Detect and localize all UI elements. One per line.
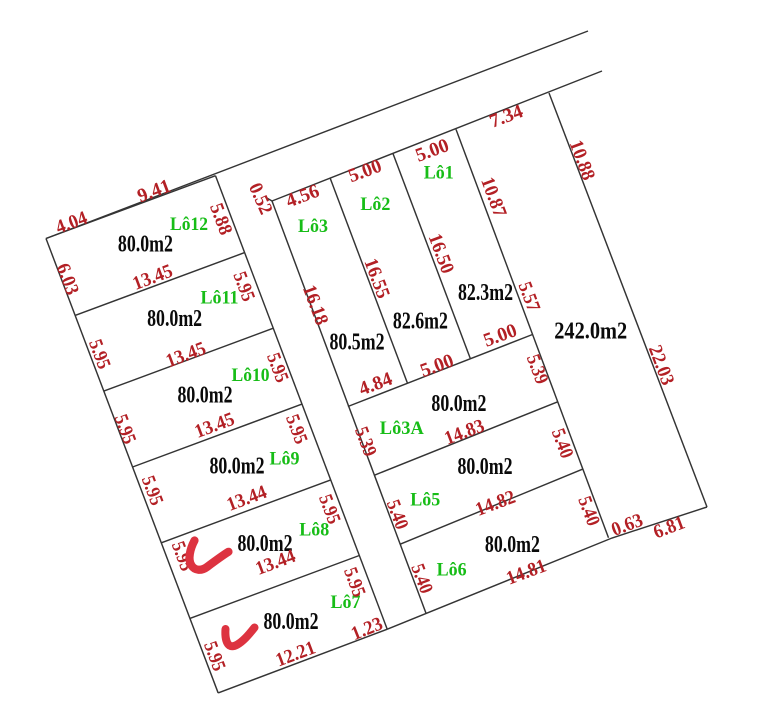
svg-text:Lô11: Lô11 (201, 288, 239, 309)
svg-text:5.39: 5.39 (350, 424, 380, 460)
svg-text:80.0m2: 80.0m2 (485, 532, 540, 558)
svg-text:80.0m2: 80.0m2 (264, 609, 319, 635)
svg-text:5.40: 5.40 (406, 561, 436, 596)
svg-text:6.81: 6.81 (651, 512, 688, 543)
svg-text:13.45: 13.45 (192, 409, 238, 443)
svg-text:Lô3A: Lô3A (380, 418, 424, 439)
svg-text:Lô3: Lô3 (298, 216, 328, 237)
svg-text:13.45: 13.45 (163, 338, 209, 372)
svg-text:16.55: 16.55 (359, 256, 393, 302)
svg-text:5.95: 5.95 (84, 337, 114, 373)
svg-text:0.63: 0.63 (609, 510, 647, 541)
svg-text:Lô5: Lô5 (410, 490, 440, 511)
svg-text:14.83: 14.83 (442, 415, 488, 449)
svg-text:4.56: 4.56 (283, 181, 322, 213)
svg-text:5.00: 5.00 (346, 156, 385, 188)
svg-text:5.95: 5.95 (137, 473, 167, 509)
svg-text:5.00: 5.00 (418, 350, 457, 382)
svg-text:80.0m2: 80.0m2 (118, 232, 173, 258)
svg-text:22.03: 22.03 (644, 342, 678, 388)
svg-text:242.0m2: 242.0m2 (554, 318, 627, 344)
svg-text:82.3m2: 82.3m2 (458, 280, 513, 306)
svg-text:6.03: 6.03 (52, 261, 83, 299)
svg-text:5.88: 5.88 (205, 201, 236, 239)
svg-text:5.40: 5.40 (382, 497, 412, 532)
svg-text:Lô10: Lô10 (232, 365, 270, 386)
svg-text:9.41: 9.41 (135, 176, 174, 208)
svg-text:5.57: 5.57 (514, 279, 544, 315)
svg-text:0.52: 0.52 (244, 180, 276, 218)
svg-text:10.88: 10.88 (565, 137, 599, 183)
svg-text:16.18: 16.18 (298, 282, 332, 328)
svg-text:13.45: 13.45 (130, 261, 176, 295)
svg-text:4.04: 4.04 (53, 208, 91, 239)
svg-text:7.34: 7.34 (487, 101, 526, 133)
svg-text:5.00: 5.00 (481, 320, 520, 352)
svg-text:5.95: 5.95 (110, 412, 140, 448)
svg-text:80.0m2: 80.0m2 (210, 453, 265, 479)
svg-text:12.21: 12.21 (273, 637, 319, 671)
svg-text:80.0m2: 80.0m2 (147, 306, 202, 332)
svg-text:5.40: 5.40 (547, 426, 577, 461)
svg-text:14.81: 14.81 (504, 556, 550, 590)
svg-text:14.82: 14.82 (473, 487, 519, 521)
svg-text:Lô2: Lô2 (360, 194, 390, 215)
svg-text:Lô12: Lô12 (170, 214, 208, 235)
svg-text:80.0m2: 80.0m2 (458, 454, 513, 480)
svg-text:Lô1: Lô1 (424, 162, 454, 183)
svg-text:5.40: 5.40 (573, 493, 603, 528)
svg-text:Lô9: Lô9 (270, 448, 300, 469)
svg-text:1.23: 1.23 (348, 613, 386, 645)
svg-text:16.50: 16.50 (424, 231, 458, 277)
svg-text:82.6m2: 82.6m2 (393, 308, 448, 334)
svg-text:80.0m2: 80.0m2 (178, 382, 233, 408)
svg-text:80.0m2: 80.0m2 (431, 391, 486, 417)
svg-text:5.39: 5.39 (522, 352, 552, 388)
svg-text:4.84: 4.84 (356, 369, 395, 401)
svg-text:Lô6: Lô6 (437, 559, 467, 580)
svg-text:80.5m2: 80.5m2 (330, 329, 385, 355)
